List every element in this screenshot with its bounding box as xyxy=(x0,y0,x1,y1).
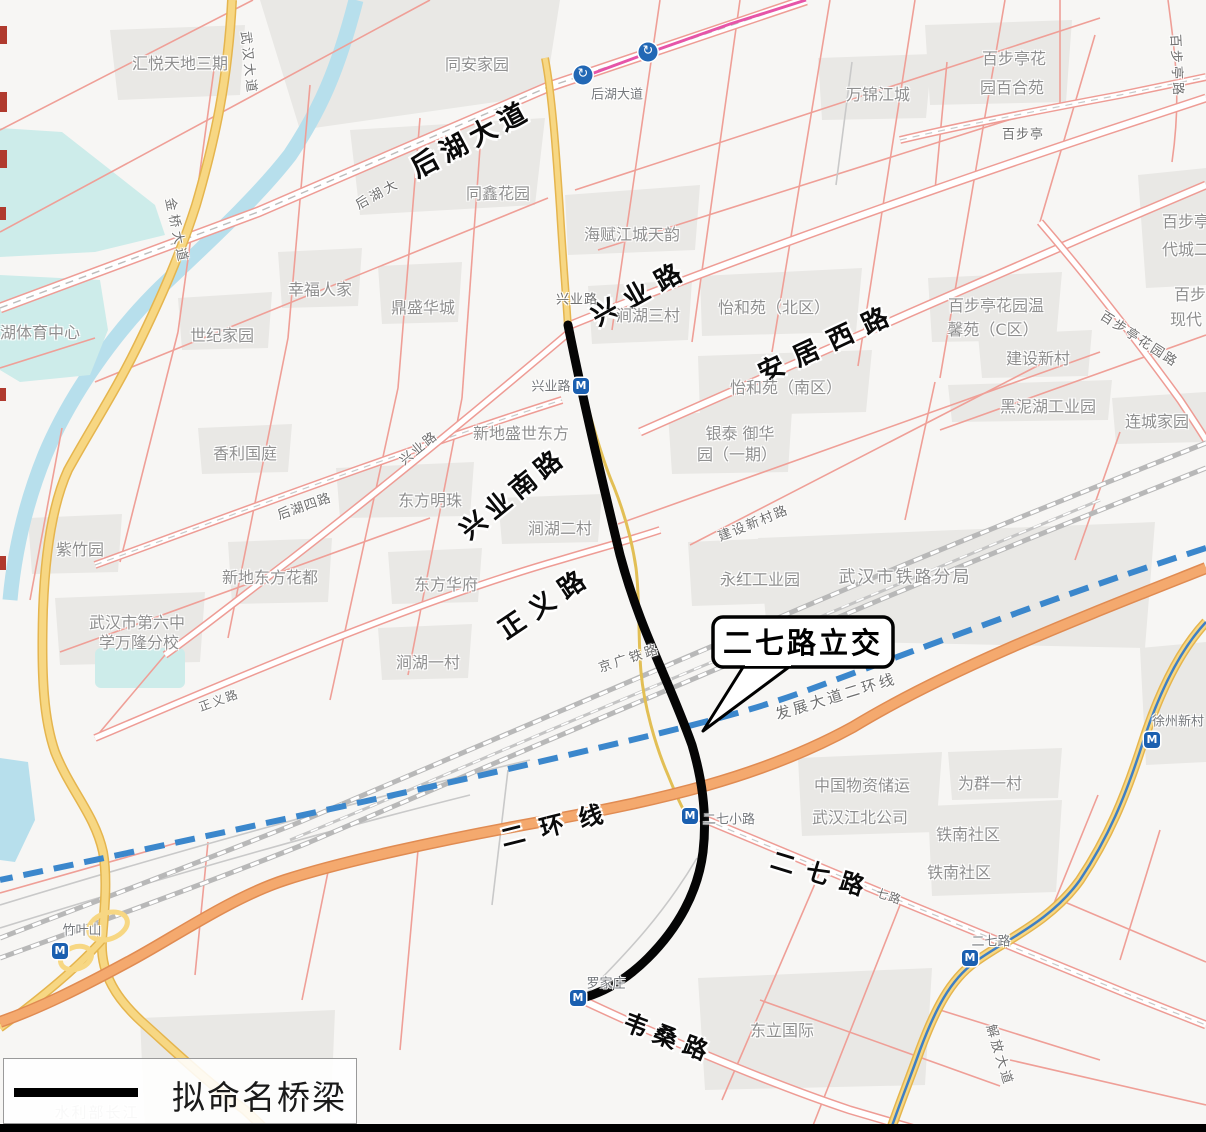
metro-station-icon[interactable]: M xyxy=(52,943,68,959)
metro-station-icon[interactable]: M xyxy=(1144,732,1160,748)
metro-station-icon[interactable]: M xyxy=(962,950,978,966)
road-interchange-icon[interactable]: ↻ xyxy=(574,66,593,85)
legend-label: 拟命名桥梁 xyxy=(172,1071,347,1119)
bottom-border-bar xyxy=(0,1124,1206,1132)
road-interchange-icon[interactable]: ↻ xyxy=(639,43,658,62)
legend-bridge-swatch xyxy=(14,1088,138,1097)
metro-station-icon[interactable]: M xyxy=(570,990,586,1006)
map-canvas[interactable]: 后湖大道兴业路安居西路兴业南路正义路二环线二七路韦桑路后湖大兴业路兴业路后湖四路… xyxy=(0,0,1206,1132)
legend-box: 拟命名桥梁 xyxy=(3,1058,357,1124)
callout-label: 二七路立交 xyxy=(723,620,883,662)
metro-station-icon[interactable]: M xyxy=(682,808,698,824)
metro-station-icon[interactable]: M xyxy=(573,378,589,394)
basemap-svg xyxy=(0,0,1206,1132)
